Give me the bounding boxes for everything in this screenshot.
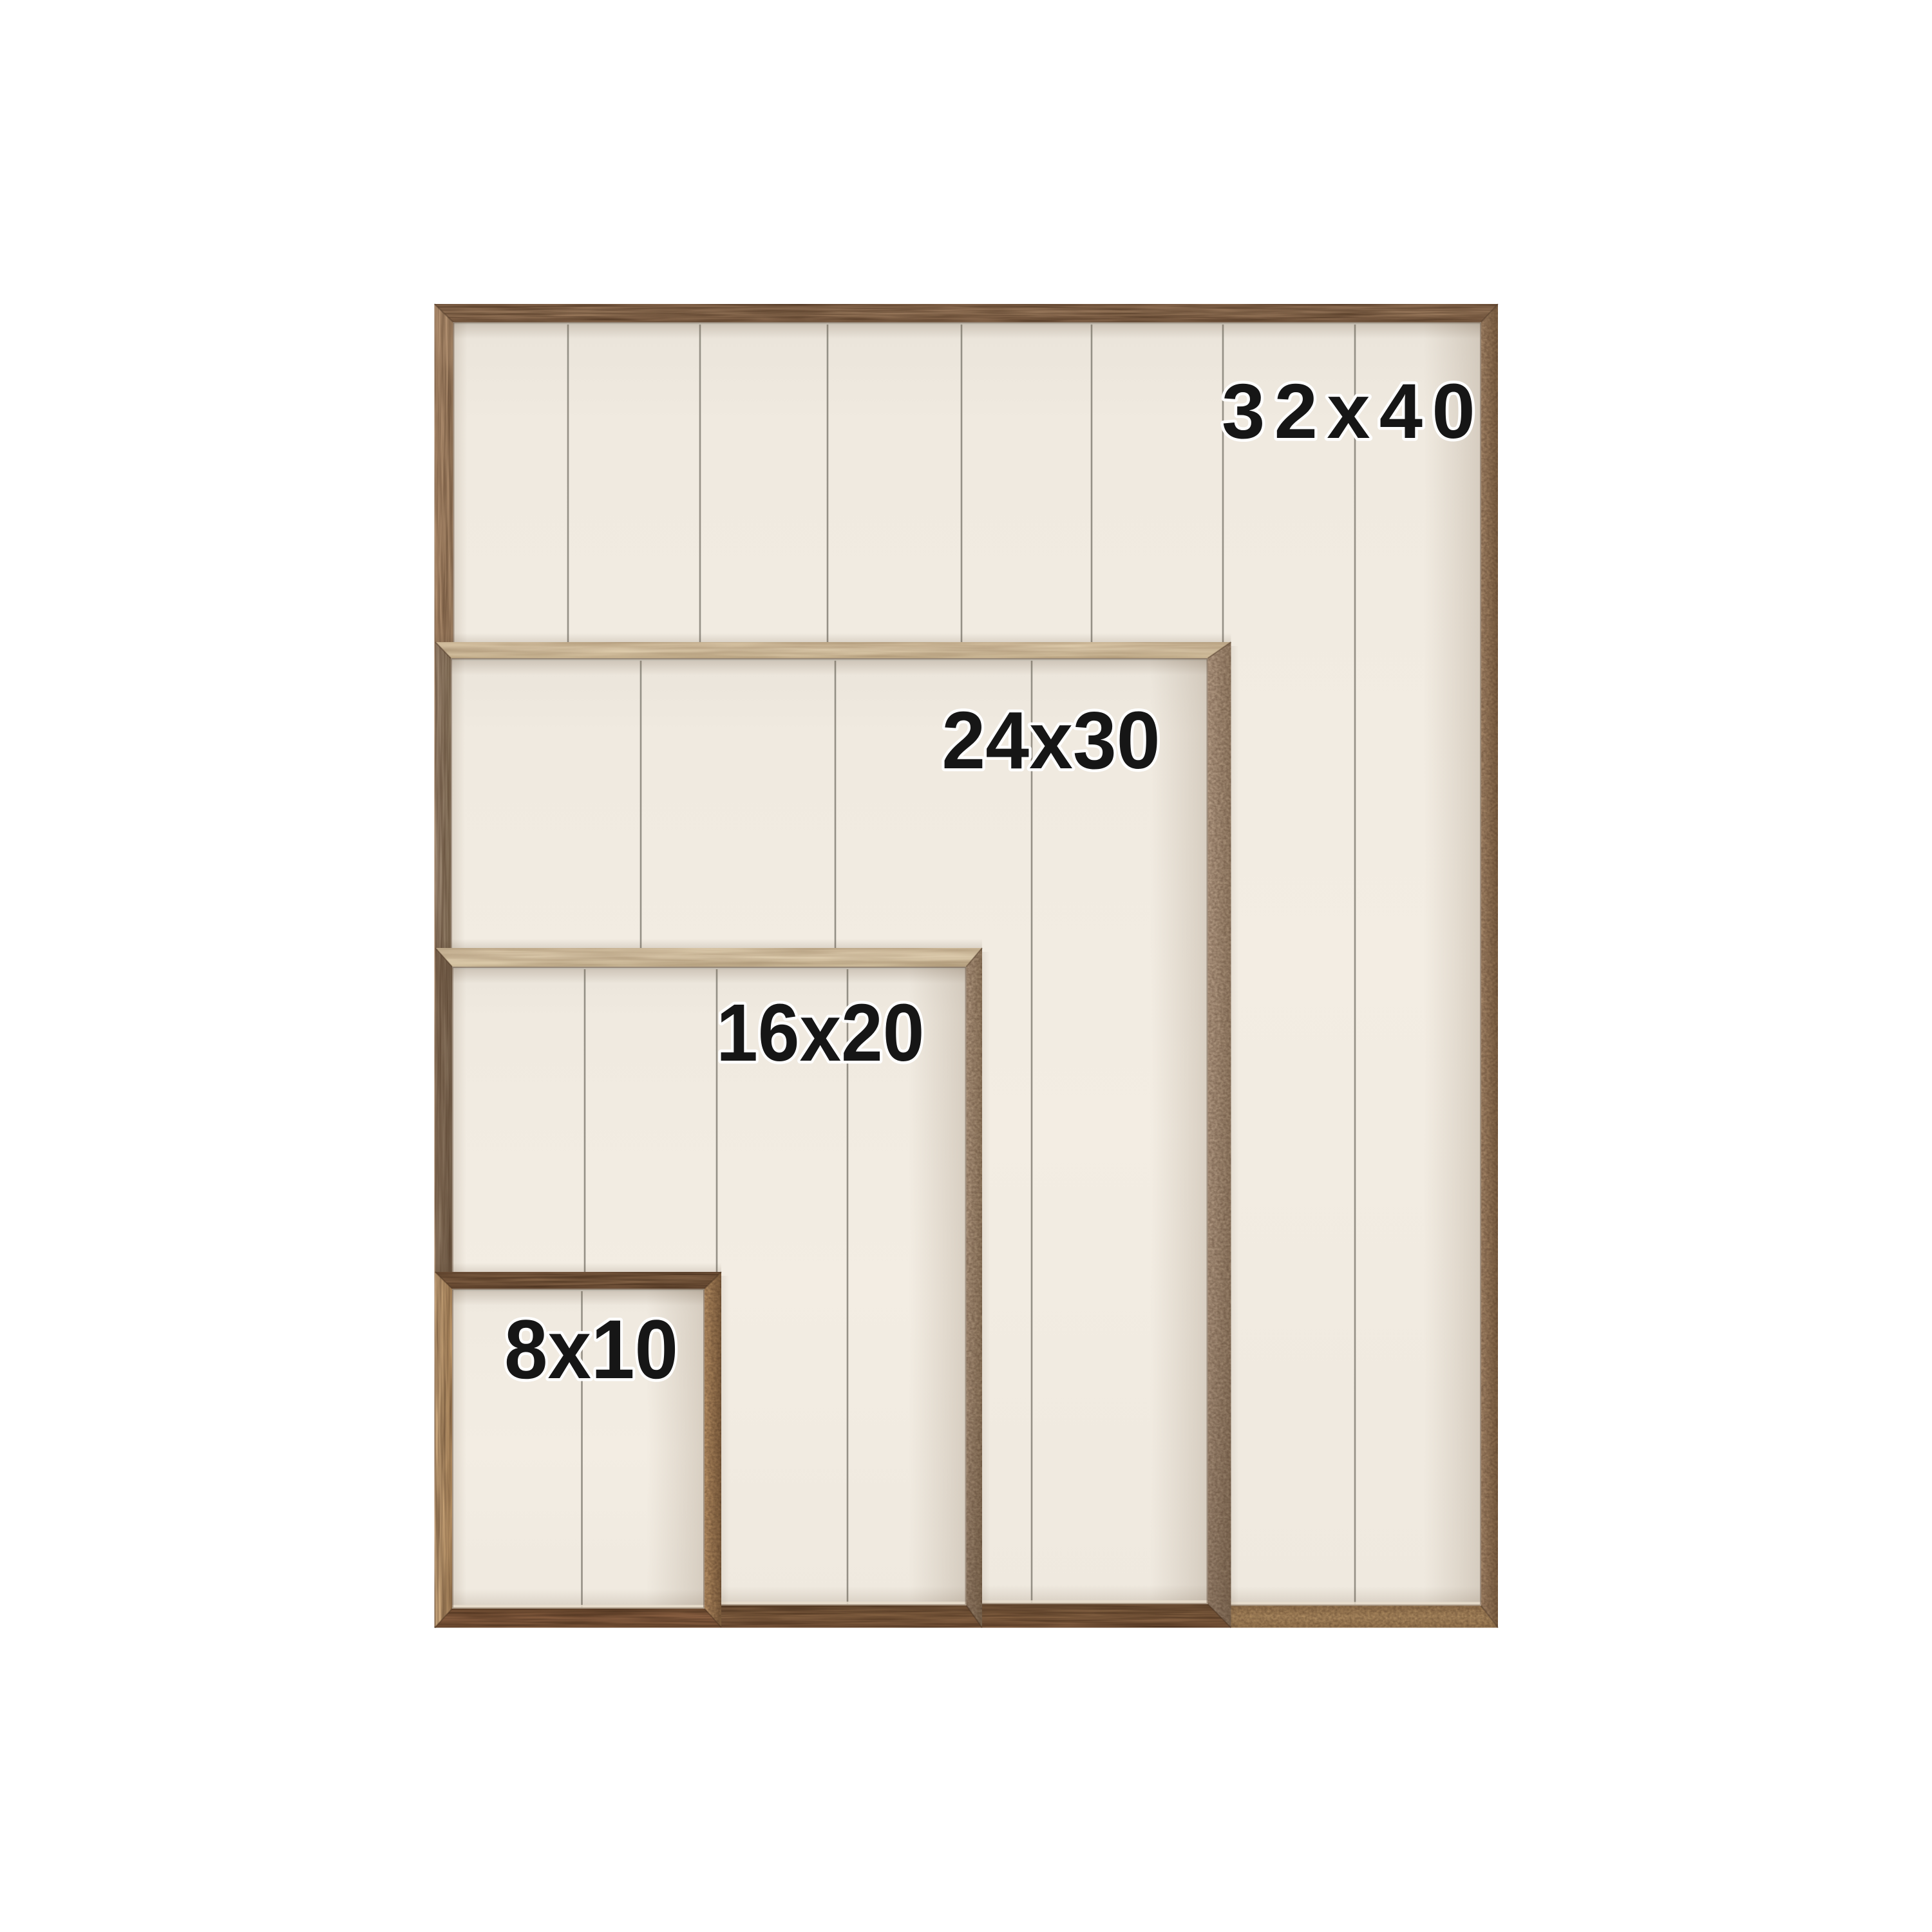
svg-text:8x10: 8x10 <box>504 1302 678 1396</box>
svg-text:16x20: 16x20 <box>716 987 924 1078</box>
svg-text:32x40: 32x40 <box>1222 367 1484 455</box>
svg-text:24x30: 24x30 <box>942 696 1160 786</box>
